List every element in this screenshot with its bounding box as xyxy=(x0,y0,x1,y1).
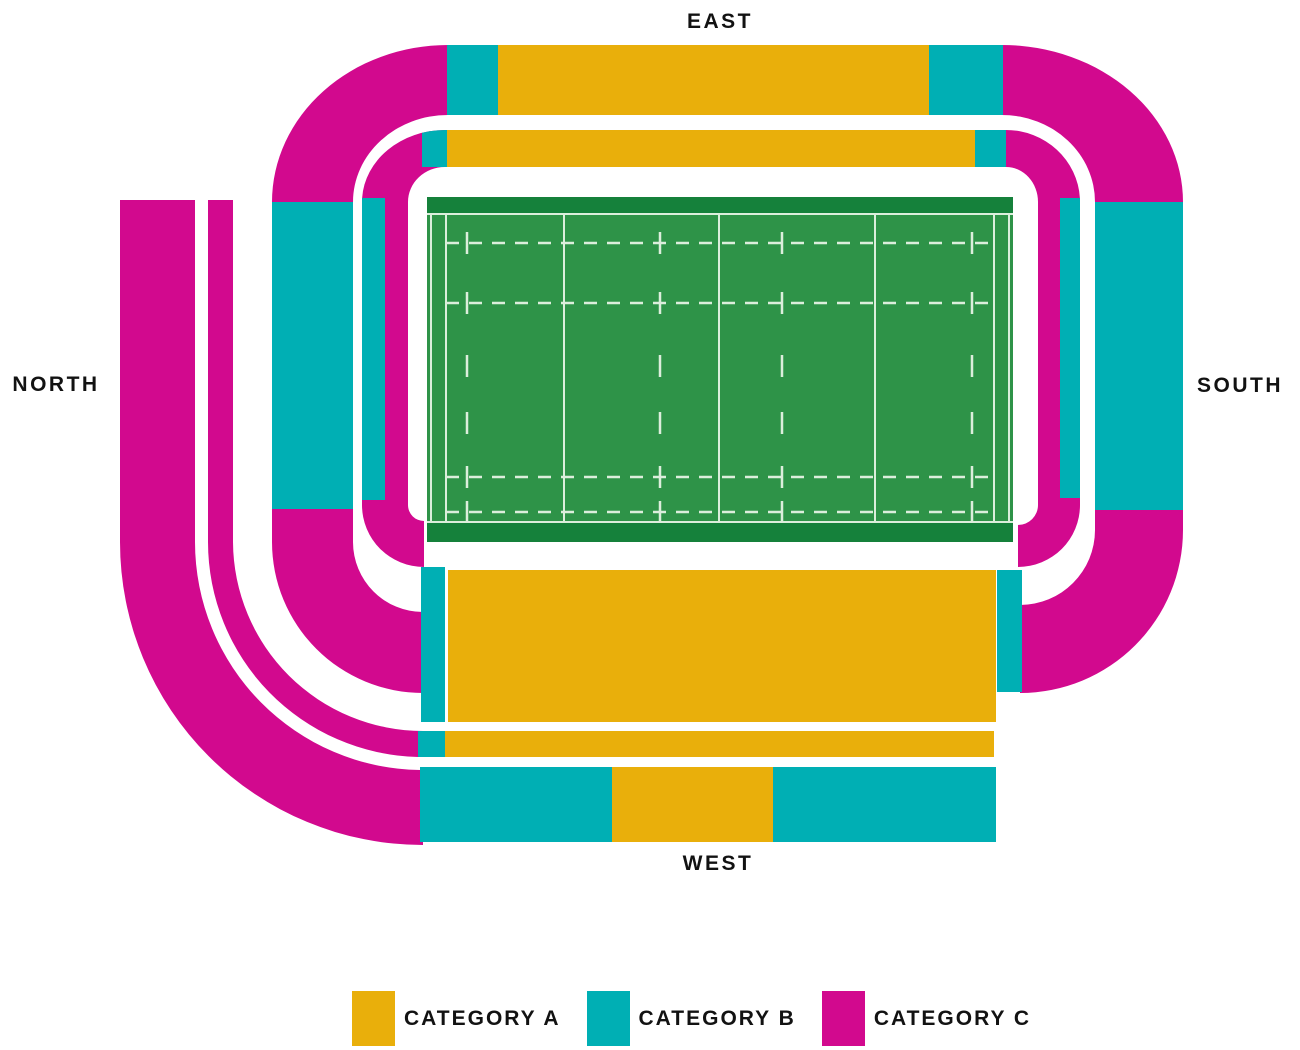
stadium-seating-map: EAST NORTH SOUTH WEST CATEGORY A CATEGOR… xyxy=(0,0,1300,1050)
stand-west-outer-category-a xyxy=(612,767,773,842)
category-a-label: CATEGORY A xyxy=(404,1007,561,1031)
category-b-label: CATEGORY B xyxy=(639,1007,796,1031)
legend-item-category-a: CATEGORY A xyxy=(352,991,561,1046)
stand-west-inner-category-a xyxy=(448,570,996,722)
stand-west-outer-category-b-left xyxy=(420,767,612,842)
stand-east-outer-category-b-left xyxy=(447,45,498,115)
category-b-swatch xyxy=(587,991,630,1046)
stand-east-inner-category-a xyxy=(447,130,978,167)
stand-north-middle-category-b xyxy=(272,202,353,509)
category-c-swatch xyxy=(822,991,865,1046)
label-east: EAST xyxy=(650,10,790,34)
stand-west-middle-category-a xyxy=(445,731,994,757)
category-a-swatch xyxy=(352,991,395,1046)
rugby-pitch xyxy=(427,197,1013,542)
label-north: NORTH xyxy=(0,373,112,397)
stand-east-inner-category-b-right xyxy=(975,130,1006,167)
legend-item-category-c: CATEGORY C xyxy=(822,991,1031,1046)
stand-west-inner-category-b-left xyxy=(421,567,445,722)
category-c-label: CATEGORY C xyxy=(874,1007,1031,1031)
stand-north-inner-category-b xyxy=(362,198,385,500)
stand-south-outer-category-b xyxy=(1095,202,1183,510)
legend-item-category-b: CATEGORY B xyxy=(587,991,796,1046)
stand-west-inner-category-b-right xyxy=(997,570,1022,692)
label-south: SOUTH xyxy=(1170,374,1300,398)
seating-map-canvas xyxy=(0,0,1300,1050)
stand-east-inner-category-b-left xyxy=(422,130,447,167)
stand-west-middle-category-b xyxy=(418,731,445,757)
stand-south-inner-category-b xyxy=(1060,198,1080,498)
label-west: WEST xyxy=(648,852,788,876)
stand-east-outer-category-a xyxy=(498,45,929,115)
stand-east-outer-category-b-right xyxy=(929,45,1003,115)
stand-west-outer-category-b-right xyxy=(773,767,996,842)
legend: CATEGORY A CATEGORY B CATEGORY C xyxy=(352,991,1057,1046)
